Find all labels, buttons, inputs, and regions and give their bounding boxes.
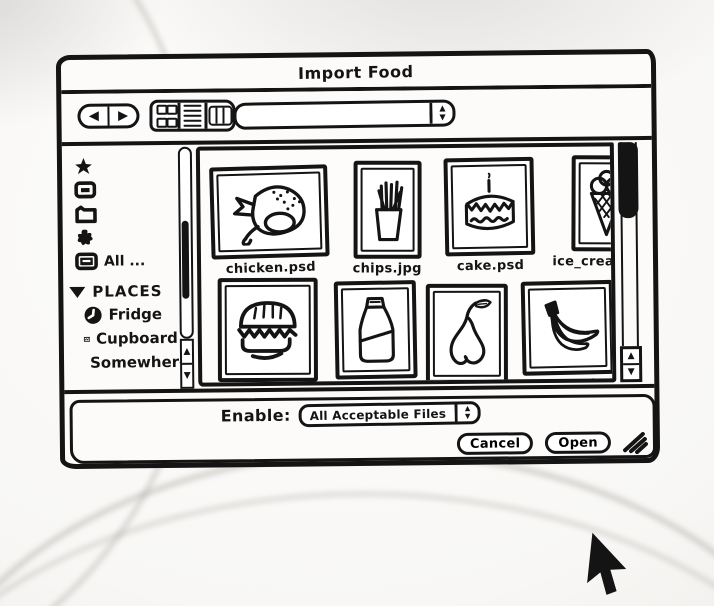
file-item-pear[interactable]: pear.jpg xyxy=(426,284,508,387)
scroll-down-button[interactable]: ▼ xyxy=(623,365,639,379)
file-name-label: cake.psd xyxy=(457,258,525,274)
clock-icon xyxy=(83,305,102,324)
file-name-label: banana.doc xyxy=(525,377,613,387)
file-name-label: ice_cream.doc xyxy=(552,254,616,269)
file-item-ice-cream[interactable]: ice_cream.doc xyxy=(552,155,616,269)
file-browser-grid: chicken.psd chips.jpg xyxy=(196,142,616,386)
location-dropdown[interactable]: ▲ ▼ xyxy=(233,99,455,129)
sidebar-place-label: Cupboard xyxy=(96,329,178,348)
scroll-down-button[interactable]: ▼ xyxy=(182,365,192,387)
forward-arrow-icon: ▶ xyxy=(118,109,128,122)
file-item-banana[interactable]: banana.doc xyxy=(521,280,615,387)
file-item-chips[interactable]: chips.jpg xyxy=(353,161,422,277)
window-title: Import Food xyxy=(298,62,414,83)
ketchup-thumbnail-icon xyxy=(345,293,404,366)
sidebar: All ... PLACES Fridge Cupboard Somewhere xyxy=(62,145,179,390)
list-view-icon xyxy=(183,102,201,130)
cancel-button[interactable]: Cancel xyxy=(457,432,534,455)
stepper-down-icon: ▼ xyxy=(439,113,445,121)
dropdown-stepper[interactable]: ▲ ▼ xyxy=(429,102,452,123)
display-icon xyxy=(74,180,96,200)
sidebar-item-cupboard[interactable]: Cupboard xyxy=(84,326,178,351)
sidebar-item-favorites[interactable] xyxy=(74,153,176,178)
dialog-footer: Enable: All Acceptable Files ▲ ▼ Cancel … xyxy=(69,394,656,464)
scrollbar-buttons: ▲ ▼ xyxy=(620,346,642,382)
sidebar-all-label: All ... xyxy=(104,253,145,269)
import-food-dialog: Import Food ◀ ▶ xyxy=(56,49,660,469)
scroll-up-button[interactable]: ▲ xyxy=(623,349,639,365)
sidebar-place-label: Fridge xyxy=(108,305,162,324)
file-name-label: chips.jpg xyxy=(353,262,422,277)
enable-label: Enable: xyxy=(221,406,291,426)
file-name-label: burger.doc xyxy=(227,385,309,387)
dropdown-stepper[interactable]: ▲ ▼ xyxy=(455,404,478,421)
scrollbar-buttons: ▲ ▼ xyxy=(180,339,195,389)
fries-thumbnail-icon xyxy=(365,174,409,246)
file-name-label: Ketchup.psd xyxy=(329,381,424,387)
back-forward-control: ◀ ▶ xyxy=(77,103,139,129)
down-triangle-icon: ▼ xyxy=(184,371,191,380)
picture-icon xyxy=(84,330,90,347)
sidebar-place-label: Somewhere xyxy=(90,353,189,372)
down-triangle-icon: ▼ xyxy=(628,368,635,377)
mouse-cursor-icon xyxy=(575,529,640,605)
flower-icon xyxy=(75,228,95,248)
scrollbar-track[interactable] xyxy=(178,147,194,339)
column-view-button[interactable] xyxy=(205,103,233,129)
column-view-icon xyxy=(208,106,232,126)
sidebar-item-computer[interactable] xyxy=(74,177,176,202)
content-area: All ... PLACES Fridge Cupboard Somewhere xyxy=(62,136,655,394)
banana-thumbnail-icon xyxy=(533,293,602,362)
sidebar-item-fridge[interactable]: Fridge xyxy=(83,302,177,327)
file-item-ketchup[interactable]: Ketchup.psd xyxy=(327,280,424,387)
cake-thumbnail-icon xyxy=(456,170,523,243)
sidebar-item-somewhere[interactable]: Somewhere xyxy=(84,350,178,375)
toolbar: ◀ ▶ ▲ ▼ xyxy=(61,88,651,142)
icon-view-button[interactable] xyxy=(152,103,177,129)
back-arrow-icon: ◀ xyxy=(89,110,99,123)
enable-filter-row: Enable: All Acceptable Files ▲ ▼ xyxy=(221,402,481,428)
scrollbar-thumb[interactable] xyxy=(618,142,639,218)
location-value xyxy=(236,103,429,127)
places-header-label: PLACES xyxy=(92,282,162,301)
monitor-icon xyxy=(75,252,98,271)
action-buttons: Cancel Open xyxy=(457,431,611,455)
ice-cream-thumbnail-icon xyxy=(583,168,616,238)
file-item-burger[interactable]: burger.doc xyxy=(218,278,318,387)
file-area-scrollbar: ▲ ▼ xyxy=(614,140,651,384)
file-item-cake[interactable]: cake.psd xyxy=(443,157,535,275)
open-button[interactable]: Open xyxy=(545,431,611,454)
forward-button[interactable]: ▶ xyxy=(110,109,137,122)
folder-icon xyxy=(74,203,97,224)
pear-thumbnail-icon xyxy=(439,297,495,371)
chicken-thumbnail-icon xyxy=(222,178,316,247)
sidebar-item-all[interactable]: All ... xyxy=(75,249,177,273)
burger-thumbnail-icon xyxy=(231,291,305,369)
sidebar-scrollbar: ▲ ▼ xyxy=(176,145,199,389)
scroll-up-button[interactable]: ▲ xyxy=(182,341,192,365)
file-item-chicken[interactable]: chicken.psd xyxy=(209,164,330,277)
stepper-down-icon: ▼ xyxy=(465,413,471,420)
list-view-button[interactable] xyxy=(177,103,205,129)
file-name-label: chicken.psd xyxy=(226,260,316,278)
places-section-header[interactable]: PLACES xyxy=(69,282,177,301)
enable-dropdown-value: All Acceptable Files xyxy=(302,406,455,423)
star-icon xyxy=(74,156,93,175)
up-triangle-icon: ▲ xyxy=(628,352,635,361)
disclosure-triangle-icon xyxy=(69,286,85,297)
grid-view-icon xyxy=(156,104,173,127)
resize-grip-icon[interactable] xyxy=(619,426,649,454)
sidebar-item-flower[interactable] xyxy=(75,225,177,250)
plate-photo-background: Import Food ◀ ▶ xyxy=(0,0,714,606)
back-button[interactable]: ◀ xyxy=(80,110,107,123)
scrollbar-thumb[interactable] xyxy=(182,221,190,299)
enable-dropdown[interactable]: All Acceptable Files ▲ ▼ xyxy=(299,401,481,427)
up-triangle-icon: ▲ xyxy=(183,347,190,356)
view-switcher xyxy=(149,100,235,132)
sidebar-item-folder[interactable] xyxy=(74,201,176,226)
